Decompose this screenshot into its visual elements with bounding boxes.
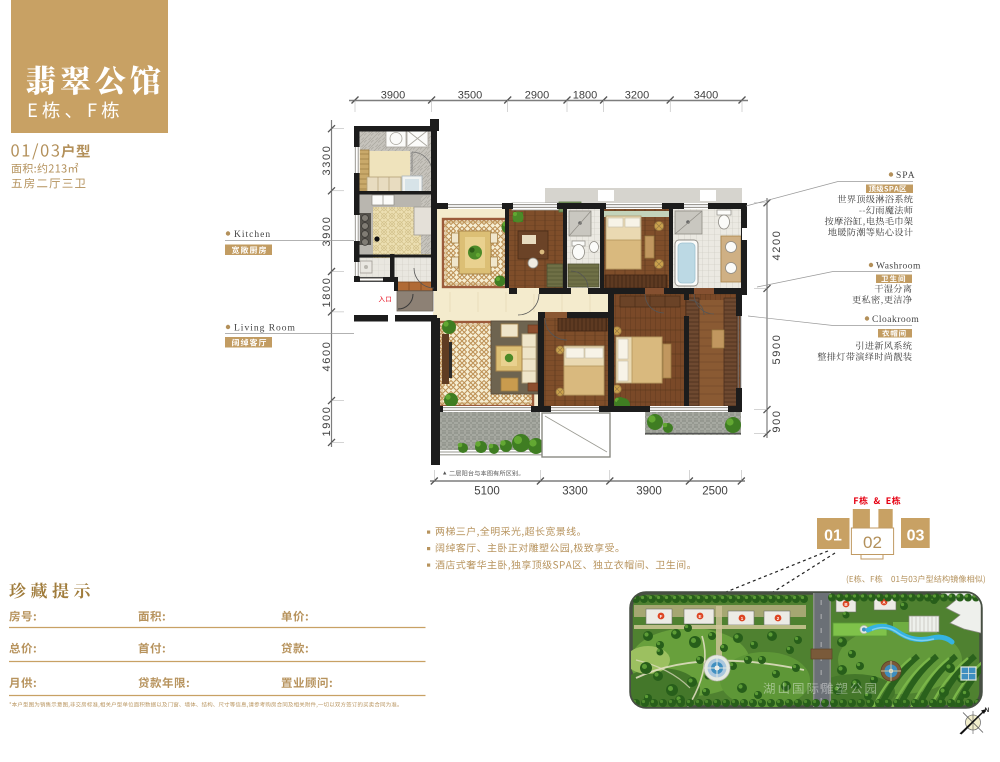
svg-text:01: 01 xyxy=(824,528,842,545)
svg-text:3400: 3400 xyxy=(694,90,718,102)
svg-text:SPA: SPA xyxy=(896,171,916,181)
svg-text:1800: 1800 xyxy=(573,90,597,102)
svg-text:Kitchen: Kitchen xyxy=(234,230,271,240)
svg-text:4200: 4200 xyxy=(771,230,783,261)
svg-text:03: 03 xyxy=(907,528,925,545)
svg-text:Cloakroom: Cloakroom xyxy=(872,315,919,325)
svg-text:3900: 3900 xyxy=(381,90,405,102)
svg-text:3900: 3900 xyxy=(321,216,333,247)
svg-text:1800: 1800 xyxy=(321,277,333,308)
svg-text:Washroom: Washroom xyxy=(876,262,921,272)
svg-text:900: 900 xyxy=(771,409,783,432)
svg-text:F: F xyxy=(660,614,663,619)
svg-text:3500: 3500 xyxy=(458,90,482,102)
svg-text:5100: 5100 xyxy=(474,486,500,498)
svg-text:2900: 2900 xyxy=(525,90,549,102)
svg-text:5900: 5900 xyxy=(771,334,783,365)
svg-text:N: N xyxy=(985,707,990,714)
svg-text:3300: 3300 xyxy=(321,145,333,176)
svg-text:E: E xyxy=(698,614,701,619)
svg-text:3900: 3900 xyxy=(636,486,662,498)
svg-text:02: 02 xyxy=(863,533,882,552)
svg-text:1900: 1900 xyxy=(321,406,333,437)
svg-text:3300: 3300 xyxy=(562,486,588,498)
svg-text:3200: 3200 xyxy=(625,90,649,102)
svg-text:Living Room: Living Room xyxy=(234,324,296,334)
svg-text:4600: 4600 xyxy=(321,341,333,372)
svg-text:2500: 2500 xyxy=(702,486,728,498)
